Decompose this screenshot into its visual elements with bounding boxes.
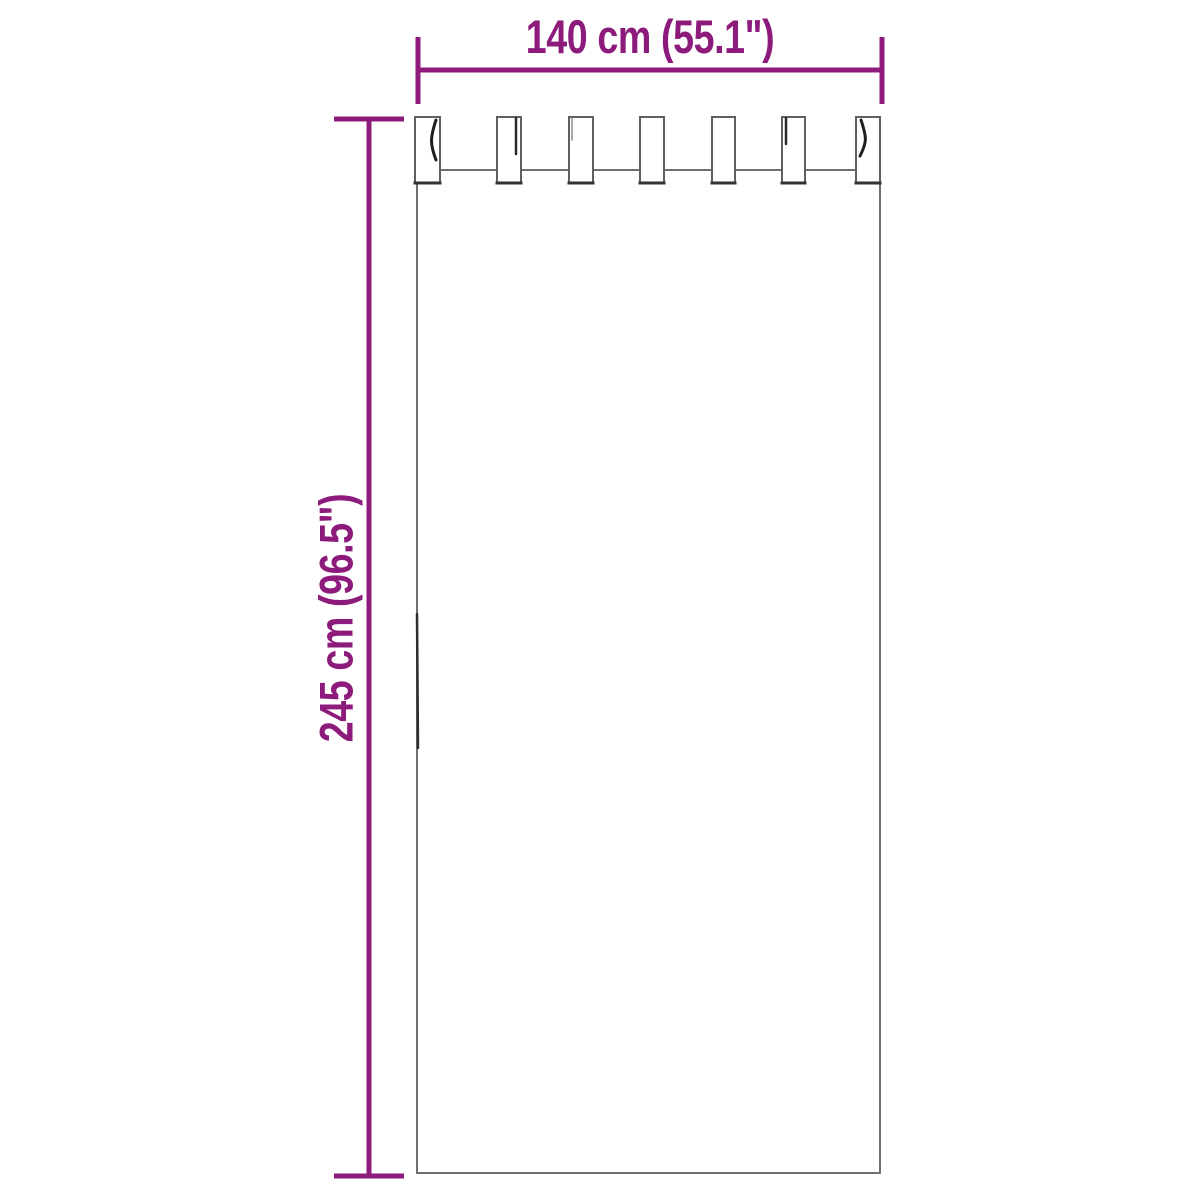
curtain-drawing: [0, 0, 1200, 1200]
height-dimension-label: 245 cm (96.5"): [313, 494, 360, 742]
left-edge-fold-line: [417, 614, 418, 748]
curtain-tab: [856, 117, 880, 183]
curtain-tab: [415, 117, 440, 183]
width-dimension-label: 140 cm (55.1"): [464, 13, 835, 60]
curtain-dimension-diagram: 140 cm (55.1") 245 cm (96.5"): [0, 0, 1200, 1200]
curtain-tab: [640, 117, 664, 183]
curtain-tab: [497, 117, 521, 183]
curtain-tab: [712, 117, 735, 183]
curtain-outline: [417, 170, 880, 1173]
